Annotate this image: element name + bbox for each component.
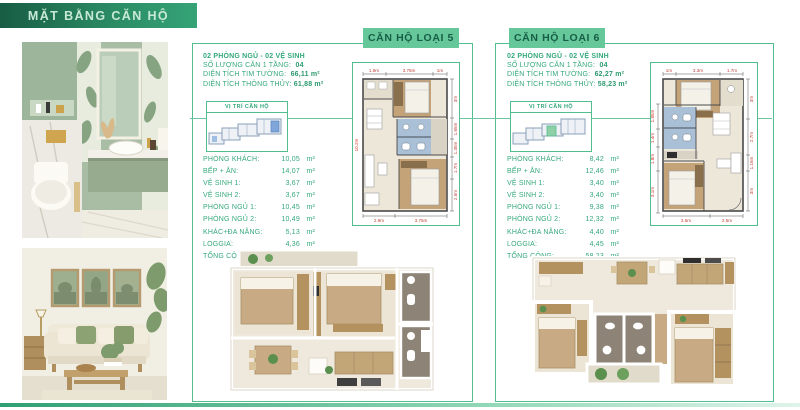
type5-wall-area: DIỆN TÍCH TIM TƯỜNG: 66,11 m² (203, 70, 353, 79)
svg-text:1.7m: 1.7m (453, 163, 458, 173)
type5-locator-title: VỊ TRÍ CĂN HỘ (207, 102, 287, 113)
table-row: PHÒNG KHÁCH:10,05m² (203, 154, 315, 166)
svg-text:1.16m: 1.16m (749, 156, 754, 169)
svg-text:1.85m: 1.85m (651, 109, 655, 122)
type6-floorplan-3d (525, 250, 743, 392)
svg-text:3m: 3m (453, 96, 458, 103)
table-row: VỆ SINH 1:3,40m² (507, 178, 619, 190)
type6-locator-diagram (511, 113, 589, 149)
type5-specs: 02 PHÒNG NGỦ - 02 VỆ SINH SỐ LƯỢNG CĂN 1… (203, 52, 353, 89)
svg-text:3.3m: 3.3m (693, 68, 703, 73)
bottom-divider (0, 403, 800, 407)
table-row: PHÒNG KHÁCH:8,42m² (507, 154, 619, 166)
svg-text:3m: 3m (749, 96, 754, 103)
svg-text:1.9m: 1.9m (369, 68, 379, 73)
svg-text:3.75m: 3.75m (415, 218, 428, 223)
type5-clear-area: DIỆN TÍCH THÔNG THỦY: 61,88 m² (203, 80, 353, 89)
type6-locator-box: VỊ TRÍ CĂN HỘ (510, 101, 592, 152)
type5-bedrooms-line: 02 PHÒNG NGỦ - 02 VỆ SINH (203, 52, 353, 61)
page-title: MẶT BẰNG CĂN HỘ (0, 3, 197, 28)
type6-quantity: SỐ LƯỢNG CĂN 1 TẦNG: 04 (507, 61, 657, 70)
table-row: PHÒNG NGỦ 1:10,45m² (203, 202, 315, 214)
svg-text:3m: 3m (749, 188, 754, 195)
svg-text:1m: 1m (437, 68, 444, 73)
svg-text:10.2m: 10.2m (354, 138, 359, 151)
svg-text:1.65m: 1.65m (453, 122, 458, 135)
svg-text:1.8m: 1.8m (651, 154, 655, 164)
table-row: KHÁC+ĐA NĂNG:5,13m² (203, 227, 315, 239)
type6-locator-title: VỊ TRÍ CĂN HỘ (511, 102, 591, 113)
table-row: PHÒNG NGỦ 1:9,38m² (507, 202, 619, 214)
svg-text:3.75m: 3.75m (403, 68, 416, 73)
svg-text:1.7m: 1.7m (727, 68, 737, 73)
table-row: VỆ SINH 2:3,67m² (203, 190, 315, 202)
svg-text:1m: 1m (666, 68, 673, 73)
type5-floorplan-2d: 1.9m 3.75m 1m 2.9m 3.75m 3m 1.65m 1.35m … (352, 62, 460, 226)
type5-locator-diagram (207, 113, 285, 149)
brochure-page: MẶT BẰNG CĂN HỘ (0, 0, 800, 410)
table-row: PHÒNG NGỦ 2:10,49m² (203, 214, 315, 226)
type6-badge: CĂN HỘ LOẠI 6 (509, 28, 605, 48)
type6-room-table: PHÒNG KHÁCH:8,42m² BẾP + ĂN:12,46m² VỆ S… (507, 154, 619, 263)
type6-bedrooms-line: 02 PHÒNG NGỦ - 02 VỆ SINH (507, 52, 657, 61)
living-room-photo (22, 248, 167, 400)
table-row: VỆ SINH 1:3,67m² (203, 178, 315, 190)
type5-badge: CĂN HỘ LOẠI 5 (363, 28, 459, 48)
table-row: BẾP + ĂN:12,46m² (507, 166, 619, 178)
svg-text:2.9m: 2.9m (374, 218, 384, 223)
svg-text:2.5m: 2.5m (722, 218, 732, 223)
table-row: KHÁC+ĐA NĂNG:4,40m² (507, 227, 619, 239)
type5-floorplan-3d (225, 246, 439, 394)
svg-text:1.35m: 1.35m (453, 141, 458, 154)
bathroom-photo (22, 42, 168, 238)
table-row: BẾP + ĂN:14,07m² (203, 166, 315, 178)
svg-text:2.7m: 2.7m (749, 132, 754, 142)
type6-specs: 02 PHÒNG NGỦ - 02 VỆ SINH SỐ LƯỢNG CĂN 1… (507, 52, 657, 89)
table-row: LOGGIA:4,45m² (507, 239, 619, 251)
type6-clear-area: DIỆN TÍCH THÔNG THỦY: 58,23 m² (507, 80, 657, 89)
type6-wall-area: DIỆN TÍCH TIM TƯỜNG: 62,27 m² (507, 70, 657, 79)
svg-text:1.4m: 1.4m (651, 133, 655, 143)
svg-text:3.5m: 3.5m (681, 218, 691, 223)
type6-floorplan-2d: 1m 3.3m 1.7m 3.5m 2.5m 3m 2.7m 1.16m 3m … (650, 62, 758, 226)
table-row: PHÒNG NGỦ 2:12,32m² (507, 214, 619, 226)
type5-quantity: SỐ LƯỢNG CĂN 1 TẦNG: 04 (203, 61, 353, 70)
svg-text:3.1m: 3.1m (651, 187, 655, 197)
table-row: VỆ SINH 2:3,40m² (507, 190, 619, 202)
svg-text:2.5m: 2.5m (453, 190, 458, 200)
type5-locator-box: VỊ TRÍ CĂN HỘ (206, 101, 288, 152)
